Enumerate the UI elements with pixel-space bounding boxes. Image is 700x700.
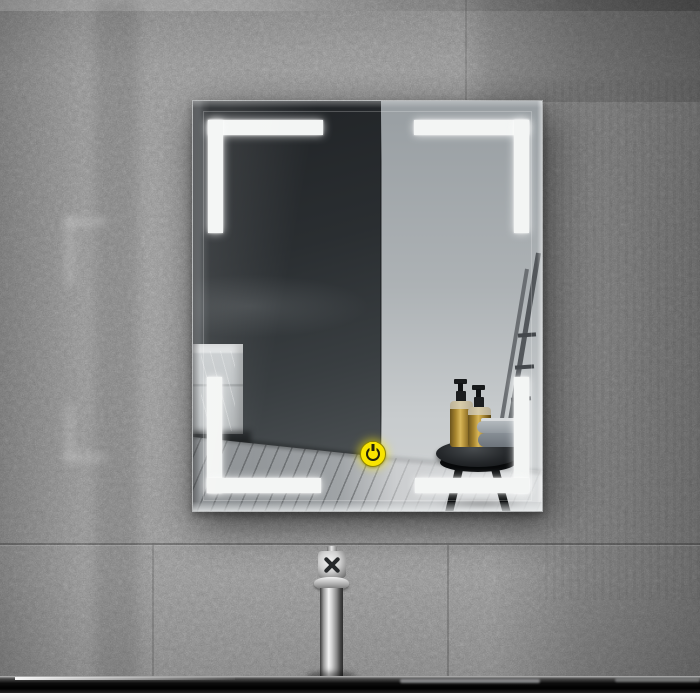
wall-led-reflection-upper — [64, 216, 108, 227]
faucet-column — [320, 588, 343, 678]
product-photo — [0, 0, 700, 700]
faucet-cross-handle — [318, 551, 346, 578]
counter-highlight — [15, 677, 235, 680]
counter-reflection-streak — [615, 678, 700, 682]
led-mirror — [192, 100, 543, 512]
counter-front-face — [0, 693, 700, 700]
wall-right-texture-streaks — [545, 80, 700, 600]
tile-seam-vertical-right — [447, 545, 449, 677]
wall-left-shadow-band — [94, 0, 138, 700]
tile-seam-vertical-top — [465, 0, 467, 100]
wall-led-reflection-lower — [64, 452, 108, 463]
tile-seam-vertical-left — [152, 545, 154, 677]
counter-reflection-streak — [400, 679, 540, 683]
tile-seam-horizontal-highlight — [0, 545, 700, 546]
glass-sheen — [193, 101, 542, 511]
